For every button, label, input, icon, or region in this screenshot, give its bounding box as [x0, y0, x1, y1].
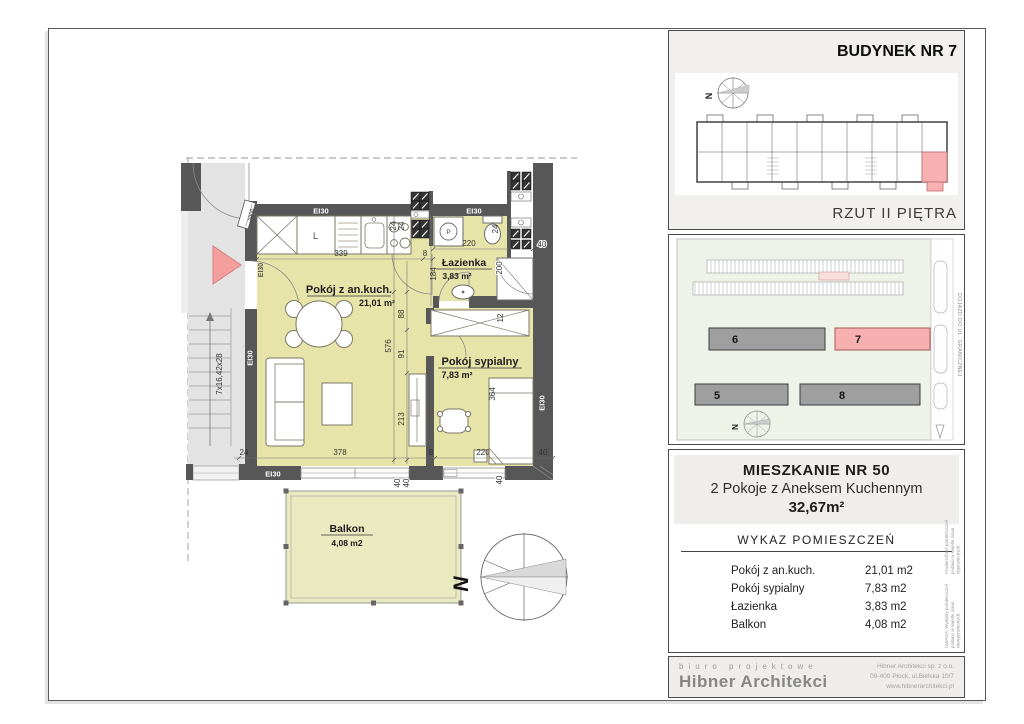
site-building-5-label: 5 — [714, 390, 720, 402]
dim-12: 12 — [496, 313, 505, 322]
balcony-label: Balkon — [329, 523, 364, 535]
measurement-note-line: UWAGA: Wymiary pomieszczeń podano w świe… — [944, 575, 962, 648]
room-schedule: Pokój z an.kuch. 21,01 m2 Pokój sypialny… — [669, 565, 964, 637]
sofa — [266, 358, 304, 446]
plan-north-label: N — [450, 576, 473, 592]
dim-8-bottom: 8 — [429, 448, 434, 457]
schedule-room-name: Balkon — [731, 619, 766, 631]
cabinet-l-label: L — [313, 231, 318, 241]
dim-40-window: 40 — [495, 475, 504, 484]
dim-40-bottom: 40 — [539, 448, 548, 457]
dining-table — [286, 301, 353, 348]
dim-88: 88 — [397, 309, 406, 318]
ei30-kitchen-wall: EI30 — [313, 207, 328, 216]
site-road — [931, 239, 953, 440]
ei30-entry-wall: EI30 — [258, 263, 265, 278]
living-label: Pokój z an.kuch. — [306, 284, 392, 296]
site-building-8 — [800, 384, 920, 405]
floor-plan: 7x16,42x28 — [181, 146, 581, 626]
ei30-bath-wall: EI30 — [466, 207, 481, 216]
company-address-line: 09-400 Płock, ul.Bielska 10/7 — [870, 672, 954, 682]
company-address-line: Hibner Architekci sp. z o.o. — [870, 662, 954, 672]
schedule-room-name: Łazienka — [731, 601, 777, 613]
site-building-8-label: 8 — [839, 390, 845, 402]
site-building-7 — [835, 328, 930, 350]
dim-220-bottom: 220 — [476, 448, 490, 457]
site-building-7-label: 7 — [855, 334, 861, 346]
sheet-border: 7x16,42x28 — [48, 28, 986, 701]
vent-shaft-block-kitchen — [411, 192, 429, 238]
ei30-left-wall: EI30 — [246, 350, 255, 365]
schedule-room-area: 3,83 m2 — [865, 601, 907, 613]
ei30-bottom-wall: EI30 — [265, 470, 280, 479]
cut-wall-fragment — [181, 208, 188, 313]
stairwell-window — [186, 464, 246, 480]
washbasin — [452, 285, 474, 299]
building-panel-svg: BUDYNEK NR 7 N — [669, 31, 964, 229]
dim-213: 213 — [397, 412, 406, 426]
company-name: Hibner Architekci — [679, 672, 828, 692]
site-building-6 — [709, 328, 825, 350]
schedule-row: Pokój sypialny 7,83 m2 — [669, 583, 964, 601]
dim-40-door-b: 40 — [402, 478, 411, 487]
balcony-area: 4,08 m2 — [331, 538, 362, 548]
company-address: Hibner Architekci sp. z o.o. 09-400 Płoc… — [870, 662, 954, 692]
desk-chair — [437, 409, 470, 433]
company-website: www.hibnerarchitekci.pl — [870, 682, 954, 692]
dim-339: 339 — [334, 249, 348, 258]
schedule-row: Balkon 4,08 m2 — [669, 619, 964, 637]
bath-area: 3,83 m² — [442, 271, 471, 281]
schedule-room-area: 7,83 m2 — [865, 583, 907, 595]
dim-91: 91 — [397, 349, 406, 358]
building-panel: BUDYNEK NR 7 N — [668, 30, 965, 230]
apartment-total-area: 32,67m² — [674, 499, 959, 516]
dim-364: 364 — [488, 387, 497, 401]
schedule-divider — [681, 551, 952, 552]
wardrobe — [431, 310, 529, 336]
building-title: BUDYNEK NR 7 — [837, 43, 957, 60]
room-schedule-title: WYKAZ POMIESZCZEŃ — [669, 533, 964, 547]
living-area: 21,01 m² — [359, 298, 395, 308]
apartment-subtitle: 2 Pokoje z Aneksem Kuchennym — [674, 481, 959, 497]
high2lighted-unit-balcony — [927, 182, 943, 191]
schedule-room-area: 21,01 m2 — [865, 565, 913, 577]
dim-184: 184 — [429, 267, 438, 281]
site-plan-svg: DOJAZD DO UL. GRANICZNEJ 6 7 5 8 N — [669, 235, 964, 444]
measurement-note-line: Powierzchnie pomieszczeń podano w świetl… — [944, 508, 962, 574]
dim-24-toilet: 24 — [491, 224, 500, 233]
dim-200: 200 — [495, 261, 504, 275]
building-outline — [697, 115, 947, 191]
site-panel: DOJAZD DO UL. GRANICZNEJ 6 7 5 8 N — [668, 234, 965, 445]
apartment-title: MIESZKANIE NR 50 — [674, 462, 959, 479]
title-block: biuro projektowe Hibner Architekci Hibne… — [668, 656, 965, 698]
apartment-header: MIESZKANIE NR 50 2 Pokoje z Aneksem Kuch… — [674, 455, 959, 524]
ei30-right-wall: EI30 — [538, 395, 547, 410]
company-tagline: biuro projektowe — [679, 662, 828, 671]
balcony-door — [301, 468, 409, 478]
site-building-6-label: 6 — [732, 334, 738, 346]
site-north-label: N — [731, 424, 740, 430]
road-label: DOJAZD DO UL. GRANICZNEJ — [956, 293, 962, 376]
schedule-room-area: 4,08 m2 — [865, 619, 907, 631]
dim-8-top: 8 — [423, 249, 428, 258]
schedule-row: Łazienka 3,83 m2 — [669, 601, 964, 619]
highlighted-unit — [922, 152, 947, 182]
drawing-sheet-canvas: 7x16,42x28 — [0, 0, 1024, 724]
measurement-note: UWAGA: Wymiary pomieszczeń podano w świe… — [944, 508, 962, 648]
building-north-label: N — [704, 93, 714, 100]
dim-24-bottom: 24 — [240, 448, 249, 457]
bath-label: Łazienka — [442, 257, 487, 269]
dim-576: 576 — [384, 339, 393, 353]
dim-40-door-a: 40 — [393, 478, 402, 487]
dim-40-bath: 40 — [538, 240, 547, 249]
site-accent-strip — [819, 272, 849, 280]
bedroom-area: 7,83 m² — [441, 370, 472, 380]
stairs-label: 7x16,42x28 — [215, 353, 224, 395]
desk — [409, 374, 426, 446]
plan-compass: N — [450, 533, 568, 621]
apartment-panel: MIESZKANIE NR 50 2 Pokoje z Aneksem Kuch… — [668, 449, 965, 653]
vent-shaft-block-right — [511, 172, 531, 249]
washer-p-label: P — [446, 229, 450, 236]
dim-24-stove-b: 24 — [397, 221, 406, 230]
schedule-row: Pokój z an.kuch. 21,01 m2 — [669, 565, 964, 583]
site-building-5 — [695, 384, 788, 405]
schedule-room-name: Pokój z an.kuch. — [731, 565, 815, 577]
building-subtitle: RZUT II PIĘTRA — [832, 205, 957, 222]
schedule-room-name: Pokój sypialny — [731, 583, 805, 595]
washing-machine: P — [434, 217, 463, 246]
bedroom-label: Pokój sypialny — [441, 356, 519, 368]
balcony: Balkon 4,08 m2 — [284, 489, 464, 606]
dim-220-bath: 220 — [462, 239, 476, 248]
dim-378: 378 — [333, 448, 347, 457]
company-block: biuro projektowe Hibner Architekci — [679, 662, 828, 692]
coffee-table — [322, 383, 352, 425]
